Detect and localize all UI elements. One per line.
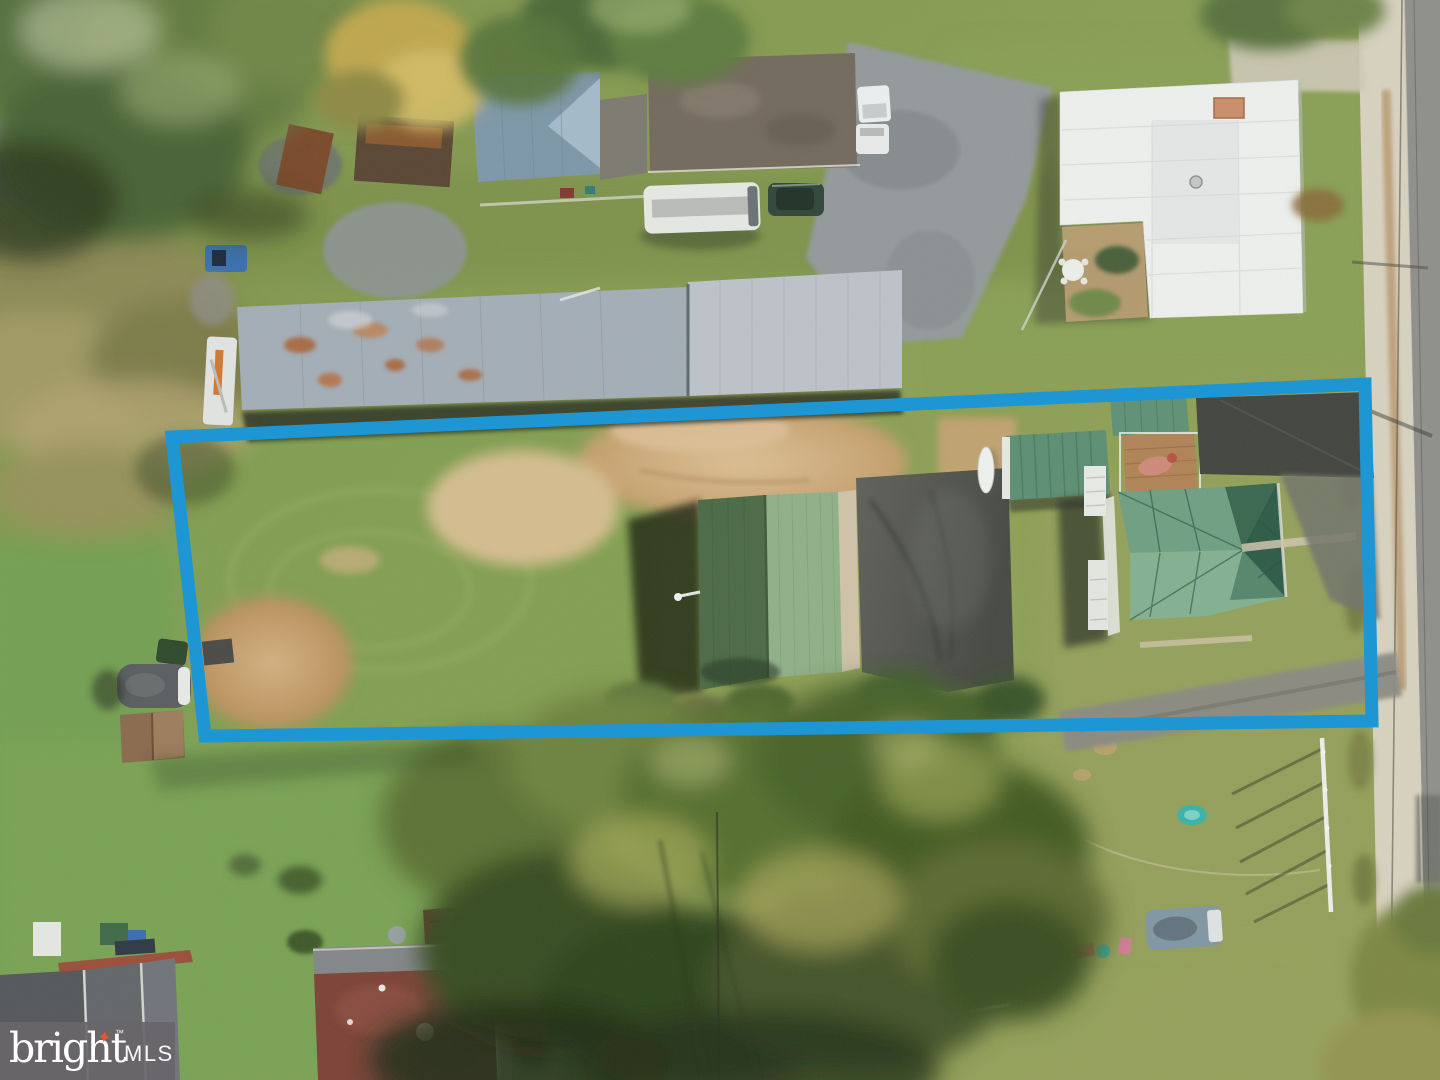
- aerial-photo-canvas: [0, 0, 1440, 1080]
- watermark-suffix-text: MLS: [124, 1041, 174, 1067]
- aerial-photo: bright ✦ ™ MLS: [0, 0, 1440, 1080]
- watermark-trademark: ™: [115, 1028, 124, 1038]
- brightmls-watermark: bright ✦ ™ MLS: [0, 1022, 175, 1080]
- photo-grain: [0, 0, 1440, 1080]
- watermark-sparkle-icon: ✦: [96, 1027, 113, 1049]
